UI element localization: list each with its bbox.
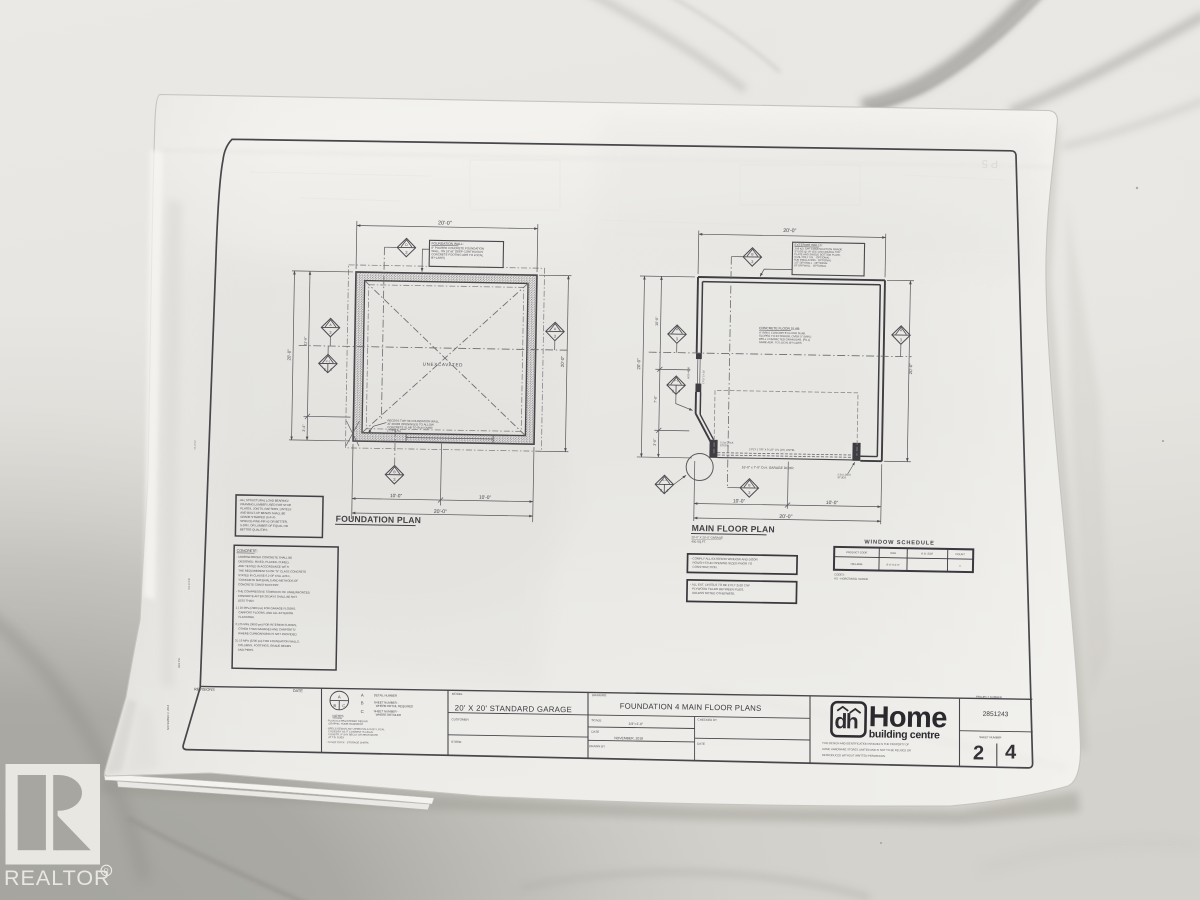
svg-text:WHERE DETAIL REQUIRED: WHERE DETAIL REQUIRED bbox=[376, 704, 413, 709]
svg-text:11'-6": 11'-6" bbox=[303, 336, 307, 346]
svg-text:B: B bbox=[333, 703, 336, 708]
svg-text:3'-4": 3'-4" bbox=[302, 424, 306, 432]
svg-text:MODEL: MODEL bbox=[452, 692, 463, 696]
svg-text:DATE: DATE bbox=[697, 742, 705, 746]
svg-text:20'-0": 20'-0" bbox=[434, 509, 447, 515]
svg-text:10'-0": 10'-0" bbox=[390, 493, 403, 499]
svg-text:C: C bbox=[361, 709, 364, 714]
svg-text:20'-0": 20'-0" bbox=[438, 220, 452, 226]
svg-text:B: B bbox=[361, 700, 364, 705]
svg-text:AT T.B. DUES: AT T.B. DUES bbox=[328, 735, 344, 739]
svg-text:R.O. SIZE: R.O. SIZE bbox=[921, 551, 933, 555]
svg-text:20'-0": 20'-0" bbox=[636, 358, 641, 370]
svg-text:4: 4 bbox=[678, 389, 680, 393]
svg-text:2: 2 bbox=[660, 489, 662, 493]
svg-text:2 PLY 1 7/8" X 9 1/2" LVL (LH): 2 PLY 1 7/8" X 9 1/2" LVL (LH) LINTEL bbox=[749, 447, 796, 452]
svg-text:UNEXCAVATED: UNEXCAVATED bbox=[423, 362, 464, 368]
svg-text:GRAPHIC HOME-BASEMENT: GRAPHIC HOME-BASEMENT bbox=[328, 721, 363, 726]
svg-text:WINDOW SCHEDULE: WINDOW SCHEDULE bbox=[864, 539, 934, 546]
svg-text:- 24 SQF DOCK - STORAGE SHARK: - 24 SQF DOCK - STORAGE SHARK bbox=[326, 740, 369, 745]
svg-text:P-1: P-1 bbox=[326, 359, 331, 363]
svg-text:DRAWING: DRAWING bbox=[592, 693, 607, 697]
svg-text:2 PLY 2 x 10: 2 PLY 2 x 10 bbox=[702, 370, 705, 384]
svg-text:WHERE DETAILED: WHERE DETAILED bbox=[376, 713, 402, 717]
svg-text:20' X 20' STANDARD GARAGE: 20' X 20' STANDARD GARAGE bbox=[455, 703, 572, 714]
svg-text:10'-0": 10'-0" bbox=[479, 495, 492, 501]
svg-text:P 5: P 5 bbox=[982, 157, 999, 169]
svg-text:dh: dh bbox=[834, 710, 858, 733]
svg-text:D-1: D-1 bbox=[662, 478, 667, 482]
svg-text:(IF DRYWALL - OPTIONAL: (IF DRYWALL - OPTIONAL bbox=[794, 263, 827, 268]
svg-text:CUSTOMER: CUSTOMER bbox=[451, 717, 469, 721]
svg-text:20'-0": 20'-0" bbox=[779, 514, 792, 520]
svg-text:PRODUCT CODE: PRODUCT CODE bbox=[846, 550, 867, 554]
svg-text:REALTOR: REALTOR bbox=[4, 866, 111, 890]
svg-text:DATE: DATE bbox=[293, 689, 303, 693]
svg-text:A: A bbox=[361, 693, 364, 698]
svg-text:10'-0": 10'-0" bbox=[733, 498, 746, 504]
svg-text:4: 4 bbox=[330, 368, 332, 372]
svg-text:FOUNDATION PLAN: FOUNDATION PLAN bbox=[336, 514, 422, 525]
svg-text:HB 2018: HB 2018 bbox=[194, 440, 197, 450]
svg-text:C: C bbox=[342, 703, 345, 708]
svg-text:4: 4 bbox=[1005, 741, 1017, 763]
svg-text:BETTER QUALITIES.: BETTER QUALITIES. bbox=[240, 527, 268, 531]
svg-text:SHEET NUMBER: SHEET NUMBER bbox=[979, 735, 1001, 739]
svg-text:2: 2 bbox=[672, 389, 674, 393]
svg-text:STORE: STORE bbox=[451, 740, 461, 744]
svg-text:CONSTRUCTION.: CONSTRUCTION. bbox=[692, 565, 717, 569]
svg-text:STUDS: STUDS bbox=[720, 444, 729, 447]
svg-text:20'-0": 20'-0" bbox=[783, 228, 796, 234]
svg-text:4: 4 bbox=[666, 489, 668, 493]
svg-text:SCALE: SCALE bbox=[591, 718, 601, 722]
svg-text:NOTES: NOTES bbox=[333, 714, 344, 718]
svg-text:LESS THAN:: LESS THAN: bbox=[238, 598, 255, 602]
svg-text:1/4"=1'-0": 1/4"=1'-0" bbox=[628, 722, 644, 726]
svg-text:DRAWN BY: DRAWN BY bbox=[589, 744, 605, 748]
svg-text:STUDS: STUDS bbox=[837, 476, 846, 479]
svg-text:HS3-4836: HS3-4836 bbox=[686, 366, 690, 378]
svg-text:PROJECT NUMBER: PROJECT NUMBER bbox=[976, 695, 1002, 699]
svg-text:SIZE: SIZE bbox=[890, 551, 896, 555]
svg-text:MAIN FLOOR PLAN: MAIN FLOOR PLAN bbox=[692, 523, 775, 534]
svg-text:P-2: P-2 bbox=[674, 378, 679, 382]
svg-text:DATE: DATE bbox=[591, 730, 599, 734]
svg-text:20'-0": 20'-0" bbox=[560, 356, 565, 368]
svg-text:3'-0": 3'-0" bbox=[653, 438, 657, 446]
svg-text:A: A bbox=[338, 694, 341, 699]
svg-text:03/1 PH: 03/1 PH bbox=[177, 658, 181, 668]
svg-text:(TYPICAL): (TYPICAL) bbox=[387, 428, 401, 432]
svg-text:2851243: 2851243 bbox=[983, 711, 1009, 718]
svg-text:400 SQ.FT.: 400 SQ.FT. bbox=[691, 540, 706, 544]
svg-text:COUNT: COUNT bbox=[956, 552, 966, 556]
svg-text:7'-0": 7'-0" bbox=[653, 395, 657, 403]
svg-text:CHECKED BY: CHECKED BY bbox=[698, 718, 718, 722]
svg-text:building centre: building centre bbox=[869, 728, 940, 741]
svg-text:4'-0" X 4'-0": 4'-0" X 4'-0" bbox=[886, 563, 900, 567]
svg-text:HS3-4836: HS3-4836 bbox=[851, 562, 863, 566]
svg-text:2: 2 bbox=[324, 368, 326, 372]
svg-text:FLATWORK.: FLATWORK. bbox=[238, 615, 255, 619]
svg-text:UNLESS NOTED OTHERWISE.: UNLESS NOTED OTHERWISE. bbox=[692, 591, 735, 596]
svg-text:NOVEMBER 2, 2018: NOVEMBER 2, 2018 bbox=[166, 704, 170, 730]
svg-text:2: 2 bbox=[973, 742, 984, 764]
svg-text:CONCRETE:: CONCRETE: bbox=[237, 549, 258, 553]
svg-text:10'-0": 10'-0" bbox=[826, 500, 839, 506]
svg-text:DETAIL NUMBER: DETAIL NUMBER bbox=[374, 693, 397, 697]
svg-text:SAME ADR. TO LOCAL BY-LAWS.: SAME ADR. TO LOCAL BY-LAWS. bbox=[759, 340, 803, 345]
svg-text:HS - HORIZONTAL SLIDER.: HS - HORIZONTAL SLIDER. bbox=[834, 576, 869, 581]
svg-text:CODES:: CODES: bbox=[834, 572, 845, 576]
svg-text:10'-0": 10'-0" bbox=[655, 316, 659, 326]
svg-text:CONCRETE CONSTRUCTION".: CONCRETE CONSTRUCTION". bbox=[238, 582, 280, 587]
svg-text:BY-LAWS): BY-LAWS) bbox=[431, 256, 445, 260]
svg-text:R: R bbox=[104, 868, 109, 875]
svg-text:NOVEMBER, 2018: NOVEMBER, 2018 bbox=[614, 736, 643, 740]
svg-text:RW-20146: RW-20146 bbox=[188, 578, 191, 590]
svg-text:20'-0": 20'-0" bbox=[286, 349, 291, 361]
svg-text:AND PIERS.: AND PIERS. bbox=[238, 648, 254, 652]
svg-text:20'-0": 20'-0" bbox=[908, 363, 913, 375]
svg-text:REVISIONS: REVISIONS bbox=[194, 688, 215, 692]
